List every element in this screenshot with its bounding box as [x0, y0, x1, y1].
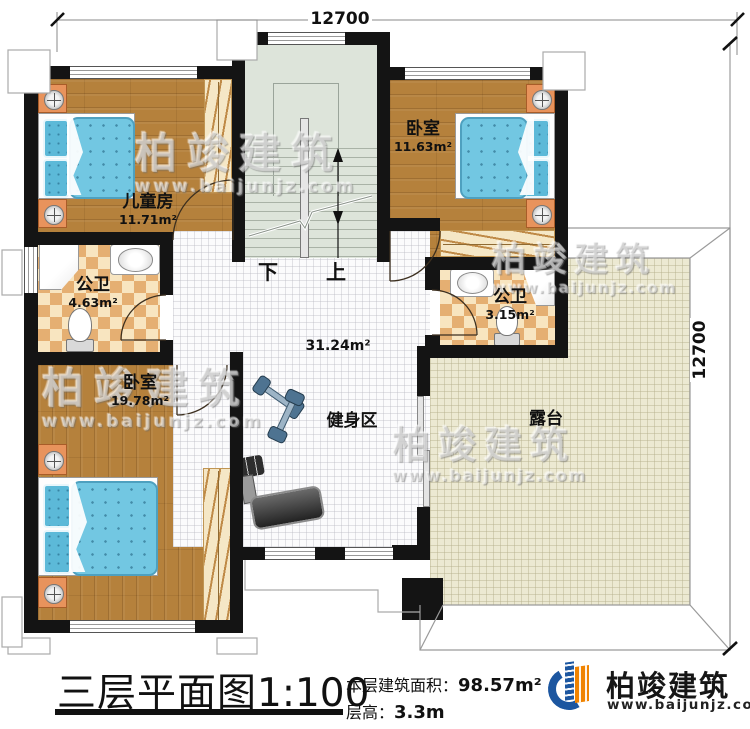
terrace-name: 露台 [518, 410, 574, 430]
bath-right-area: 3.15m² [477, 308, 543, 322]
floor-height-line: 层高：3.3m [346, 699, 445, 723]
bath-left-label: 公卫 4.63m² [60, 276, 126, 310]
bedroom-tr-label: 卧室 11.63m² [385, 120, 461, 154]
bath-right-label: 公卫 3.15m² [477, 288, 543, 322]
stair-annotations [249, 148, 372, 258]
dimension-ticks [51, 13, 744, 655]
logo-building-blue-icon [565, 661, 574, 700]
floor-height-value: 3.3m [394, 702, 445, 723]
hall-area: 31.24m² [300, 338, 376, 354]
stairs-down-label: 下 [258, 256, 278, 285]
annotations-svg [0, 0, 750, 729]
bedroom-tr-area: 11.63m² [385, 140, 461, 154]
hall-area-label: 31.24m² [300, 338, 376, 354]
gym-label: 健身区 [308, 412, 396, 432]
children-room-area: 11.71m² [108, 213, 188, 227]
children-room-name: 儿童房 [108, 193, 188, 213]
children-room-label: 儿童房 11.71m² [108, 193, 188, 227]
brand-logo-icon [547, 660, 599, 712]
bath-left-name: 公卫 [60, 276, 126, 296]
roof-outline [245, 560, 420, 612]
floor-area-line: 本层建筑面积：98.57m² [346, 672, 542, 696]
gym-name: 健身区 [308, 412, 396, 432]
terrace-label: 露台 [518, 410, 574, 430]
floor-area-label: 本层建筑面积： [346, 676, 458, 695]
floor-area-value: 98.57m² [458, 675, 542, 696]
dimension-right: 12700 [690, 318, 710, 382]
window-sill-boxes [2, 20, 585, 654]
terrace-railing-outline [420, 228, 730, 650]
bath-right-name: 公卫 [477, 288, 543, 308]
bedroom-bl-area: 19.78m² [103, 394, 177, 408]
dimension-lines [57, 12, 737, 648]
dimension-top: 12700 [308, 9, 372, 29]
bedroom-bl-label: 卧室 19.78m² [103, 374, 177, 408]
title-underline [55, 709, 343, 715]
floor-height-label: 层高： [346, 703, 394, 722]
logo-building-orange-icon [575, 665, 589, 703]
floor-plan-page: 柏竣建筑 www.baijunjz.com 柏竣建筑 www.baijunjz.… [0, 0, 750, 729]
bedroom-bl-name: 卧室 [103, 374, 177, 394]
brand-url: www.baijunjz.com [607, 697, 750, 713]
bath-left-area: 4.63m² [60, 296, 126, 310]
bedroom-tr-name: 卧室 [385, 120, 461, 140]
stairs-up-label: 上 [326, 256, 346, 285]
